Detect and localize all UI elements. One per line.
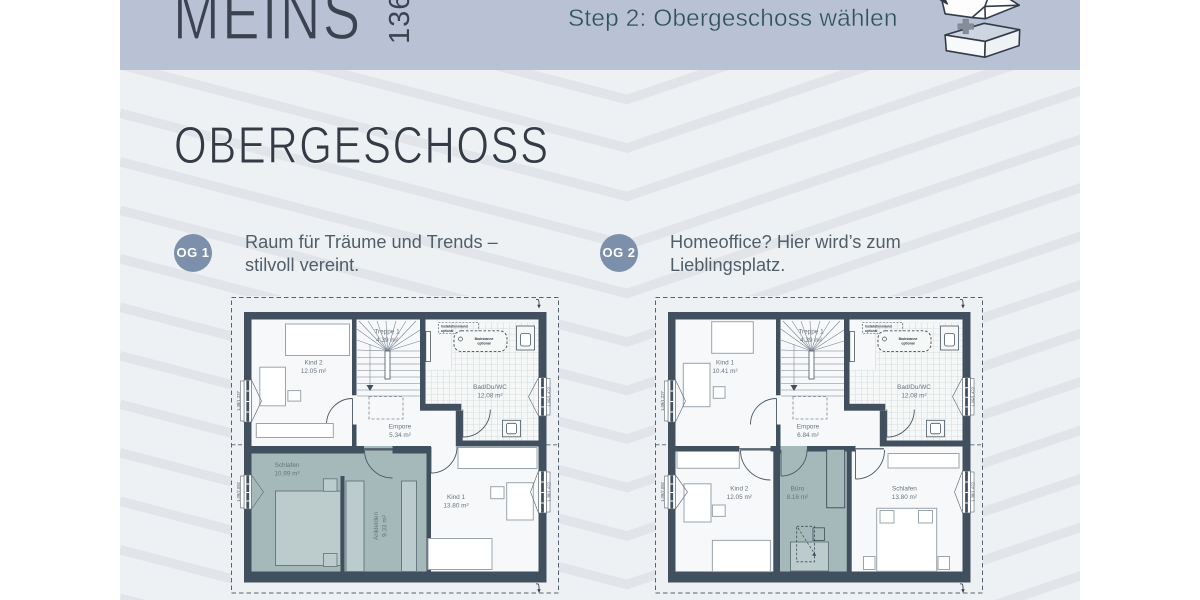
svg-text:1.09/2.092: 1.09/2.092 — [660, 481, 665, 501]
svg-text:optional: optional — [865, 329, 878, 333]
svg-text:Ankleiden: Ankleiden — [373, 512, 380, 541]
svg-text:1.09/1.422: 1.09/1.422 — [971, 386, 976, 406]
svg-text:10.99 m²: 10.99 m² — [274, 471, 299, 478]
svg-text:5.34 m²: 5.34 m² — [389, 432, 411, 439]
svg-text:optional: optional — [441, 329, 454, 333]
svg-text:8.16 m²: 8.16 m² — [787, 494, 809, 501]
svg-text:1.38/1.237: 1.38/1.237 — [236, 390, 241, 410]
svg-text:Badewanne: Badewanne — [899, 337, 918, 341]
svg-text:Treppe 1: Treppe 1 — [798, 329, 824, 336]
svg-text:Kind 1: Kind 1 — [716, 360, 735, 367]
svg-text:Kind 2: Kind 2 — [730, 486, 749, 493]
svg-text:6.84 m²: 6.84 m² — [797, 432, 819, 439]
svg-text:1.38/1.422: 1.38/1.422 — [547, 481, 552, 501]
svg-text:Bad/Du/WC: Bad/Du/WC — [473, 384, 507, 391]
svg-text:13.80 m²: 13.80 m² — [443, 503, 468, 510]
svg-text:12.08 m²: 12.08 m² — [901, 393, 926, 400]
svg-text:Schlafen: Schlafen — [892, 486, 917, 493]
svg-text:9.33 m²: 9.33 m² — [382, 515, 389, 537]
svg-text:Empore: Empore — [389, 424, 412, 431]
svg-text:1.09/1.422: 1.09/1.422 — [547, 386, 552, 406]
svg-text:Büro: Büro — [791, 486, 805, 493]
svg-text:optional: optional — [901, 342, 914, 346]
svg-text:136: 136 — [384, 0, 416, 44]
svg-text:optional: optional — [477, 342, 490, 346]
svg-text:Badewanne: Badewanne — [475, 337, 494, 341]
svg-text:1.38/1.422: 1.38/1.422 — [971, 481, 976, 501]
svg-text:Schlafen: Schlafen — [275, 462, 300, 469]
svg-text:4.39 m²: 4.39 m² — [376, 337, 398, 344]
svg-text:Bad/Du/WC: Bad/Du/WC — [897, 384, 931, 391]
svg-text:4.39 m²: 4.39 m² — [800, 337, 822, 344]
svg-text:1.09/1.227: 1.09/1.227 — [660, 390, 665, 410]
svg-text:Kind 1: Kind 1 — [447, 494, 466, 501]
svg-text:13.80 m²: 13.80 m² — [892, 494, 917, 501]
svg-text:1.09/2.092: 1.09/2.092 — [236, 481, 241, 501]
svg-text:12.05 m²: 12.05 m² — [301, 368, 326, 375]
svg-text:Empore: Empore — [797, 424, 820, 431]
svg-text:12.08 m²: 12.08 m² — [477, 393, 502, 400]
svg-text:10.41 m²: 10.41 m² — [712, 368, 737, 375]
svg-text:Kind 2: Kind 2 — [304, 360, 323, 367]
svg-text:12.05 m²: 12.05 m² — [727, 494, 752, 501]
svg-text:Treppe 1: Treppe 1 — [374, 329, 400, 336]
